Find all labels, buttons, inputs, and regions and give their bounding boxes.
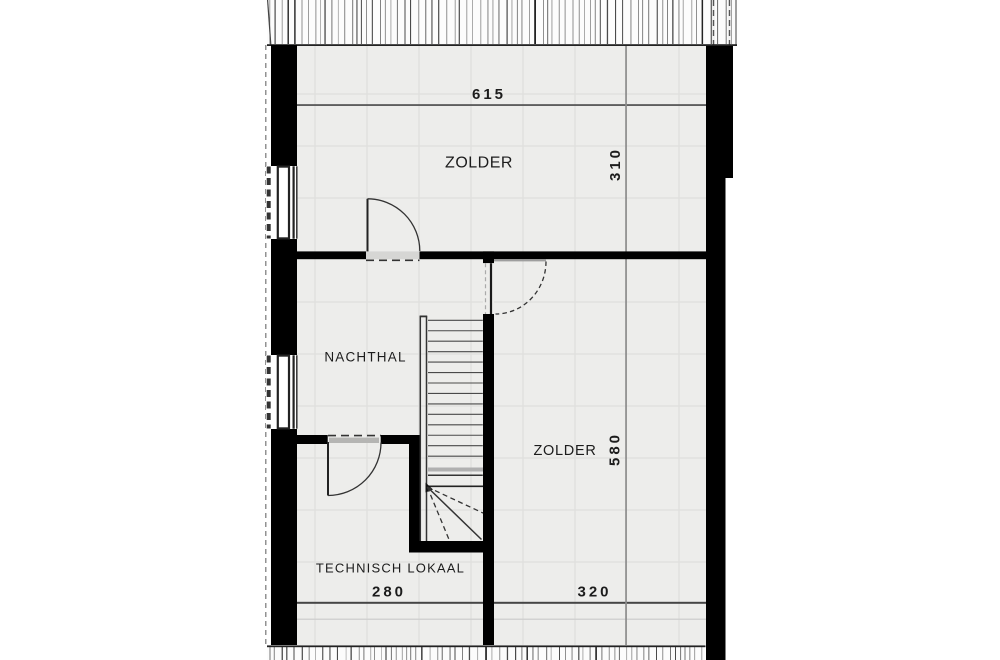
svg-text:NACHTHAL: NACHTHAL (324, 350, 406, 365)
svg-text:TECHNISCH LOKAAL: TECHNISCH LOKAAL (316, 561, 465, 576)
svg-text:ZOLDER: ZOLDER (533, 443, 596, 459)
svg-text:320: 320 (577, 583, 611, 600)
svg-text:580: 580 (607, 432, 624, 466)
svg-text:310: 310 (607, 147, 624, 181)
svg-text:615: 615 (472, 86, 506, 103)
svg-text:ZOLDER: ZOLDER (445, 154, 513, 171)
svg-text:280: 280 (372, 583, 406, 600)
